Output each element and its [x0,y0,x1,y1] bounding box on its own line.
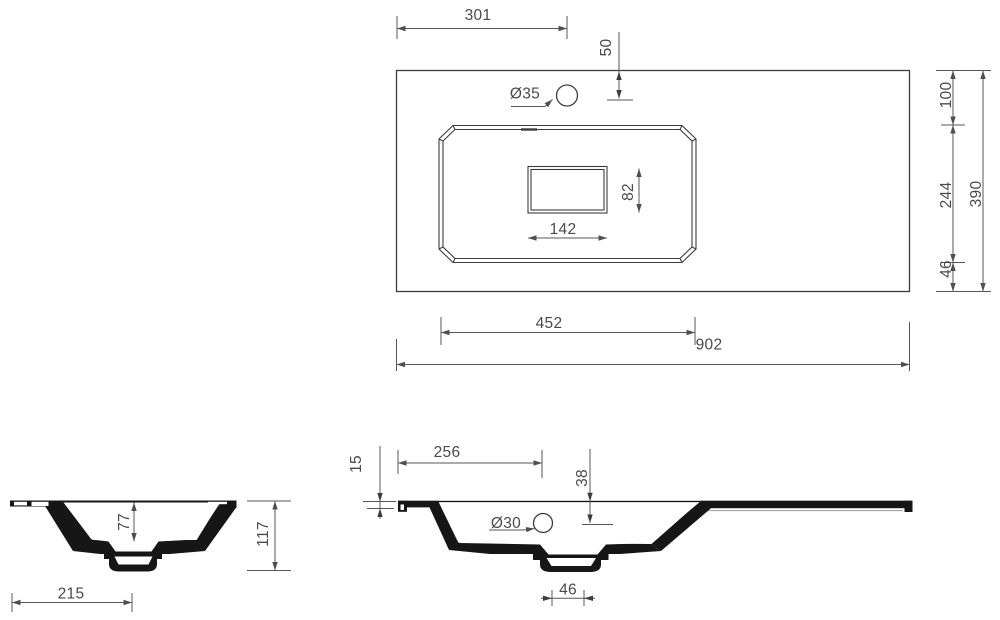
dim-82: 82 [620,169,639,213]
overflow-hole-label: Ø30 [491,515,521,532]
dim-label-77: 77 [116,513,133,531]
faucet-hole [557,85,578,106]
dim-label-117: 117 [255,521,272,547]
side-section-body [10,501,237,572]
dim-452: 452 [441,315,695,345]
dim-256: 256 [398,444,542,478]
dim-label-390: 390 [968,181,985,208]
basin-corner-chamfers [439,126,696,263]
drain-cutout-inner [531,170,604,211]
dim-label-452: 452 [536,315,563,332]
dim-15: 15 [348,446,396,519]
dim-label-50: 50 [598,39,615,57]
dim-label-38: 38 [574,469,591,487]
dim-902: 902 [397,322,910,371]
dim-50: 50 [598,32,633,100]
top-view-plan: Ø35 301 50 142 82 [397,7,992,371]
dim-117: 117 [247,501,291,571]
dim-label-82: 82 [620,183,637,201]
dim-label-244: 244 [938,182,955,209]
dim-right-stack: 100 244 46 390 [936,71,991,292]
dim-label-46-front: 46 [559,582,577,599]
dim-label-256: 256 [434,444,461,461]
faucet-hole-label: Ø35 [510,86,540,103]
dim-label-46-plan: 46 [938,260,955,278]
dim-label-902: 902 [696,337,723,354]
dim-215: 215 [12,586,132,613]
dim-label-100: 100 [938,82,955,109]
technical-drawing-page: Ø35 301 50 142 82 [0,0,1000,620]
front-section-view: Ø30 256 15 38 [348,444,913,606]
dim-label-301: 301 [465,7,492,24]
drain-cutout-outer [528,167,607,214]
washbasin-drawing: Ø35 301 50 142 82 [0,0,1000,620]
front-section-body [398,501,913,572]
dim-label-15: 15 [348,455,365,473]
dim-142: 142 [528,221,607,238]
dim-46-front: 46 [541,582,595,607]
basin-outline-outer [439,126,696,263]
side-section-view: 77 117 215 [10,501,291,613]
basin-outline-inner [443,130,692,259]
dim-label-215: 215 [58,586,85,603]
dim-label-142: 142 [550,221,577,238]
dim-301: 301 [397,7,567,39]
